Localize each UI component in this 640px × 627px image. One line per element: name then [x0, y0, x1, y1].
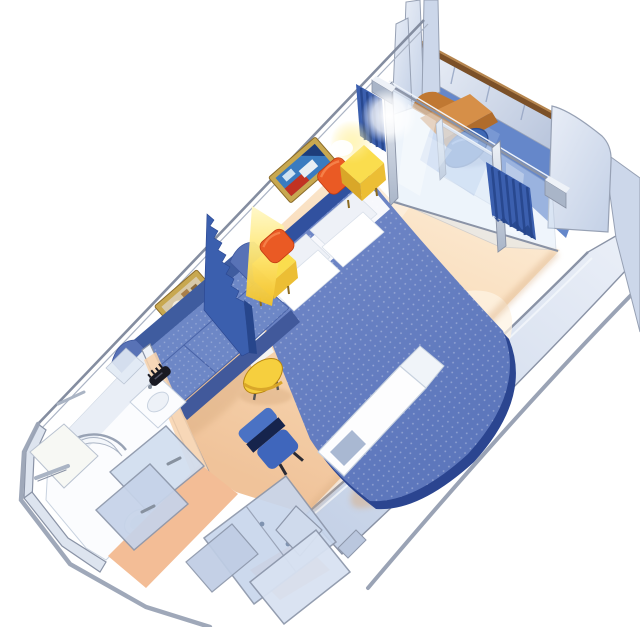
- lamp-shade-right: [331, 140, 353, 156]
- balcony-divider-left-inner: [422, 0, 440, 100]
- wardrobe-knob: [260, 522, 265, 527]
- stateroom-floorplan: [0, 0, 640, 627]
- floorplan-illustration: [0, 0, 640, 627]
- balcony-divider-right: [548, 106, 611, 232]
- sink-faucet-base: [148, 385, 152, 389]
